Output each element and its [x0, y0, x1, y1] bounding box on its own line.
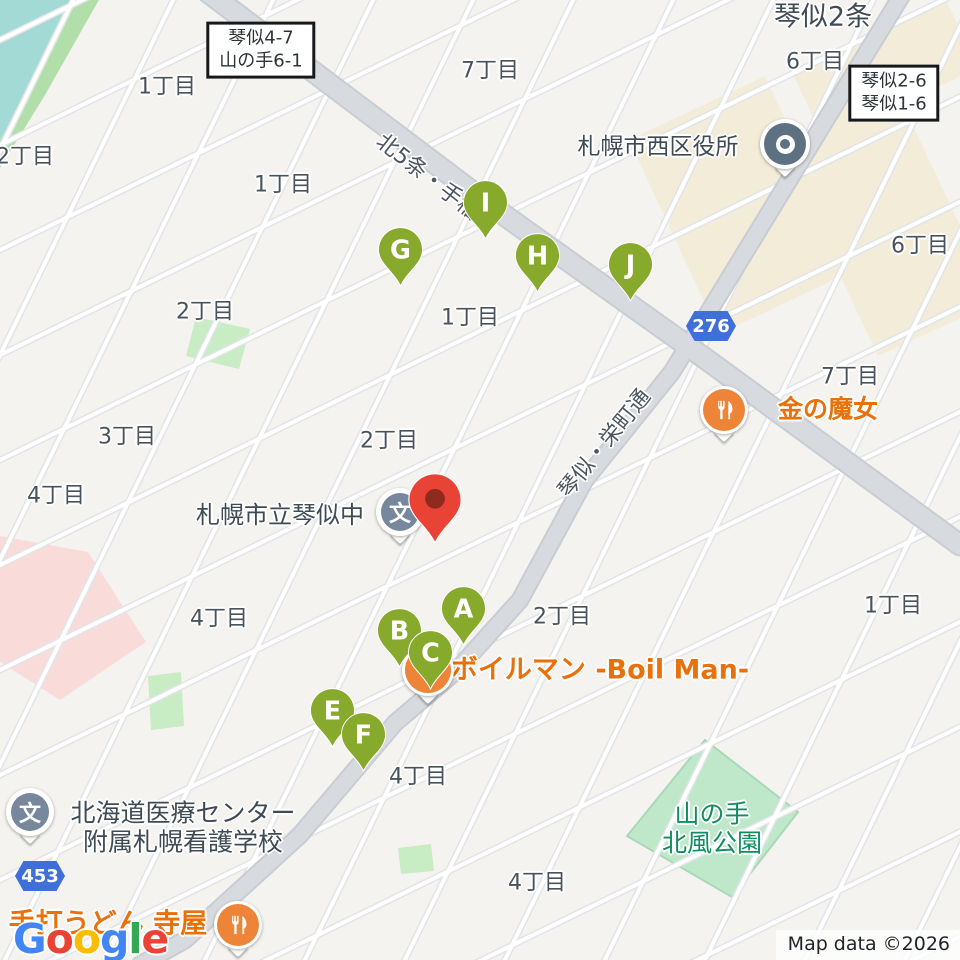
poi-label: 札幌市西区役所	[578, 134, 739, 160]
district-label: 琴似2条	[774, 1, 872, 32]
road-name-label: 琴似・栄町通	[554, 385, 657, 504]
poi-label: ボイルマン -Boil Man-	[451, 654, 749, 685]
svg-text:E: E	[323, 696, 340, 726]
map-attribution: Map data ©2026	[776, 930, 960, 960]
route-shield: 453	[15, 861, 65, 891]
google-logo-letter: G	[13, 915, 46, 960]
district-label: 2丁目	[176, 299, 234, 324]
poi-blob: 文	[6, 788, 54, 836]
poi-label: 山の手北風公園	[662, 800, 762, 858]
restaurant-icon-disc	[703, 389, 745, 431]
google-logo-letter: g	[100, 915, 128, 960]
google-logo-letter: o	[46, 915, 73, 960]
route-shield: 276	[686, 311, 736, 341]
letter-pin-C[interactable]: C	[407, 629, 454, 690]
district-label: 3丁目	[98, 424, 156, 449]
google-logo-letter: o	[73, 915, 100, 960]
district-label: 4丁目	[190, 606, 248, 631]
restaurant-poi[interactable]	[214, 901, 262, 949]
svg-text:J: J	[623, 250, 634, 280]
letter-pin-F[interactable]: F	[340, 711, 387, 772]
district-label: 4丁目	[508, 870, 566, 895]
restaurant-icon	[709, 395, 739, 425]
district-label: 2丁目	[360, 428, 418, 453]
map-canvas[interactable]: 琴似2条1丁目7丁目6丁目2丁目1丁目2丁目1丁目6丁目7丁目3丁目2丁目4丁目…	[0, 0, 960, 960]
svg-text:I: I	[480, 188, 489, 218]
destination-pin[interactable]	[407, 472, 463, 544]
address-range-box: 琴似4-7山の手6-1	[206, 22, 315, 79]
poi-blob	[214, 901, 262, 949]
district-label: 1丁目	[254, 172, 312, 197]
government-office-icon	[764, 123, 806, 165]
google-logo-letter: e	[141, 915, 168, 960]
svg-text:C: C	[421, 638, 440, 668]
svg-text:H: H	[526, 241, 547, 271]
district-label: 2丁目	[0, 144, 54, 169]
restaurant-icon	[223, 910, 253, 940]
school-icon: 文	[11, 793, 49, 831]
district-label: 7丁目	[461, 58, 519, 83]
district-label: 1丁目	[441, 305, 499, 330]
district-label: 4丁目	[27, 483, 85, 508]
poi-label: 金の魔女	[778, 396, 878, 425]
letter-pin-H[interactable]: H	[514, 232, 561, 293]
svg-text:G: G	[390, 235, 411, 265]
svg-text:F: F	[354, 720, 371, 750]
poi-blob	[760, 119, 810, 169]
restaurant-poi[interactable]	[700, 386, 748, 434]
district-label: 6丁目	[891, 233, 949, 258]
school-poi[interactable]: 文	[6, 788, 54, 836]
letter-pin-I[interactable]: I	[462, 179, 509, 240]
district-label: 1丁目	[864, 593, 922, 618]
letter-pin-G[interactable]: G	[377, 226, 424, 287]
google-logo[interactable]: Google	[13, 915, 168, 960]
district-label: 7丁目	[821, 364, 879, 389]
government-office-poi[interactable]	[760, 119, 810, 169]
district-label: 4丁目	[389, 764, 447, 789]
district-label: 6丁目	[786, 49, 844, 74]
poi-label: 札幌市立琴似中	[196, 502, 364, 530]
letter-pin-J[interactable]: J	[607, 241, 654, 302]
svg-text:A: A	[453, 594, 473, 624]
restaurant-icon-disc	[217, 904, 259, 946]
district-label: 2丁目	[533, 604, 591, 629]
poi-label: 北海道医療センター附属札幌看護学校	[70, 799, 295, 857]
map-markers-layer: 琴似2条1丁目7丁目6丁目2丁目1丁目2丁目1丁目6丁目7丁目3丁目2丁目4丁目…	[0, 0, 960, 960]
poi-blob	[700, 386, 748, 434]
google-logo-letter: l	[128, 915, 141, 960]
district-label: 1丁目	[138, 74, 196, 99]
address-range-box: 琴似2-6琴似1-6	[848, 65, 939, 122]
